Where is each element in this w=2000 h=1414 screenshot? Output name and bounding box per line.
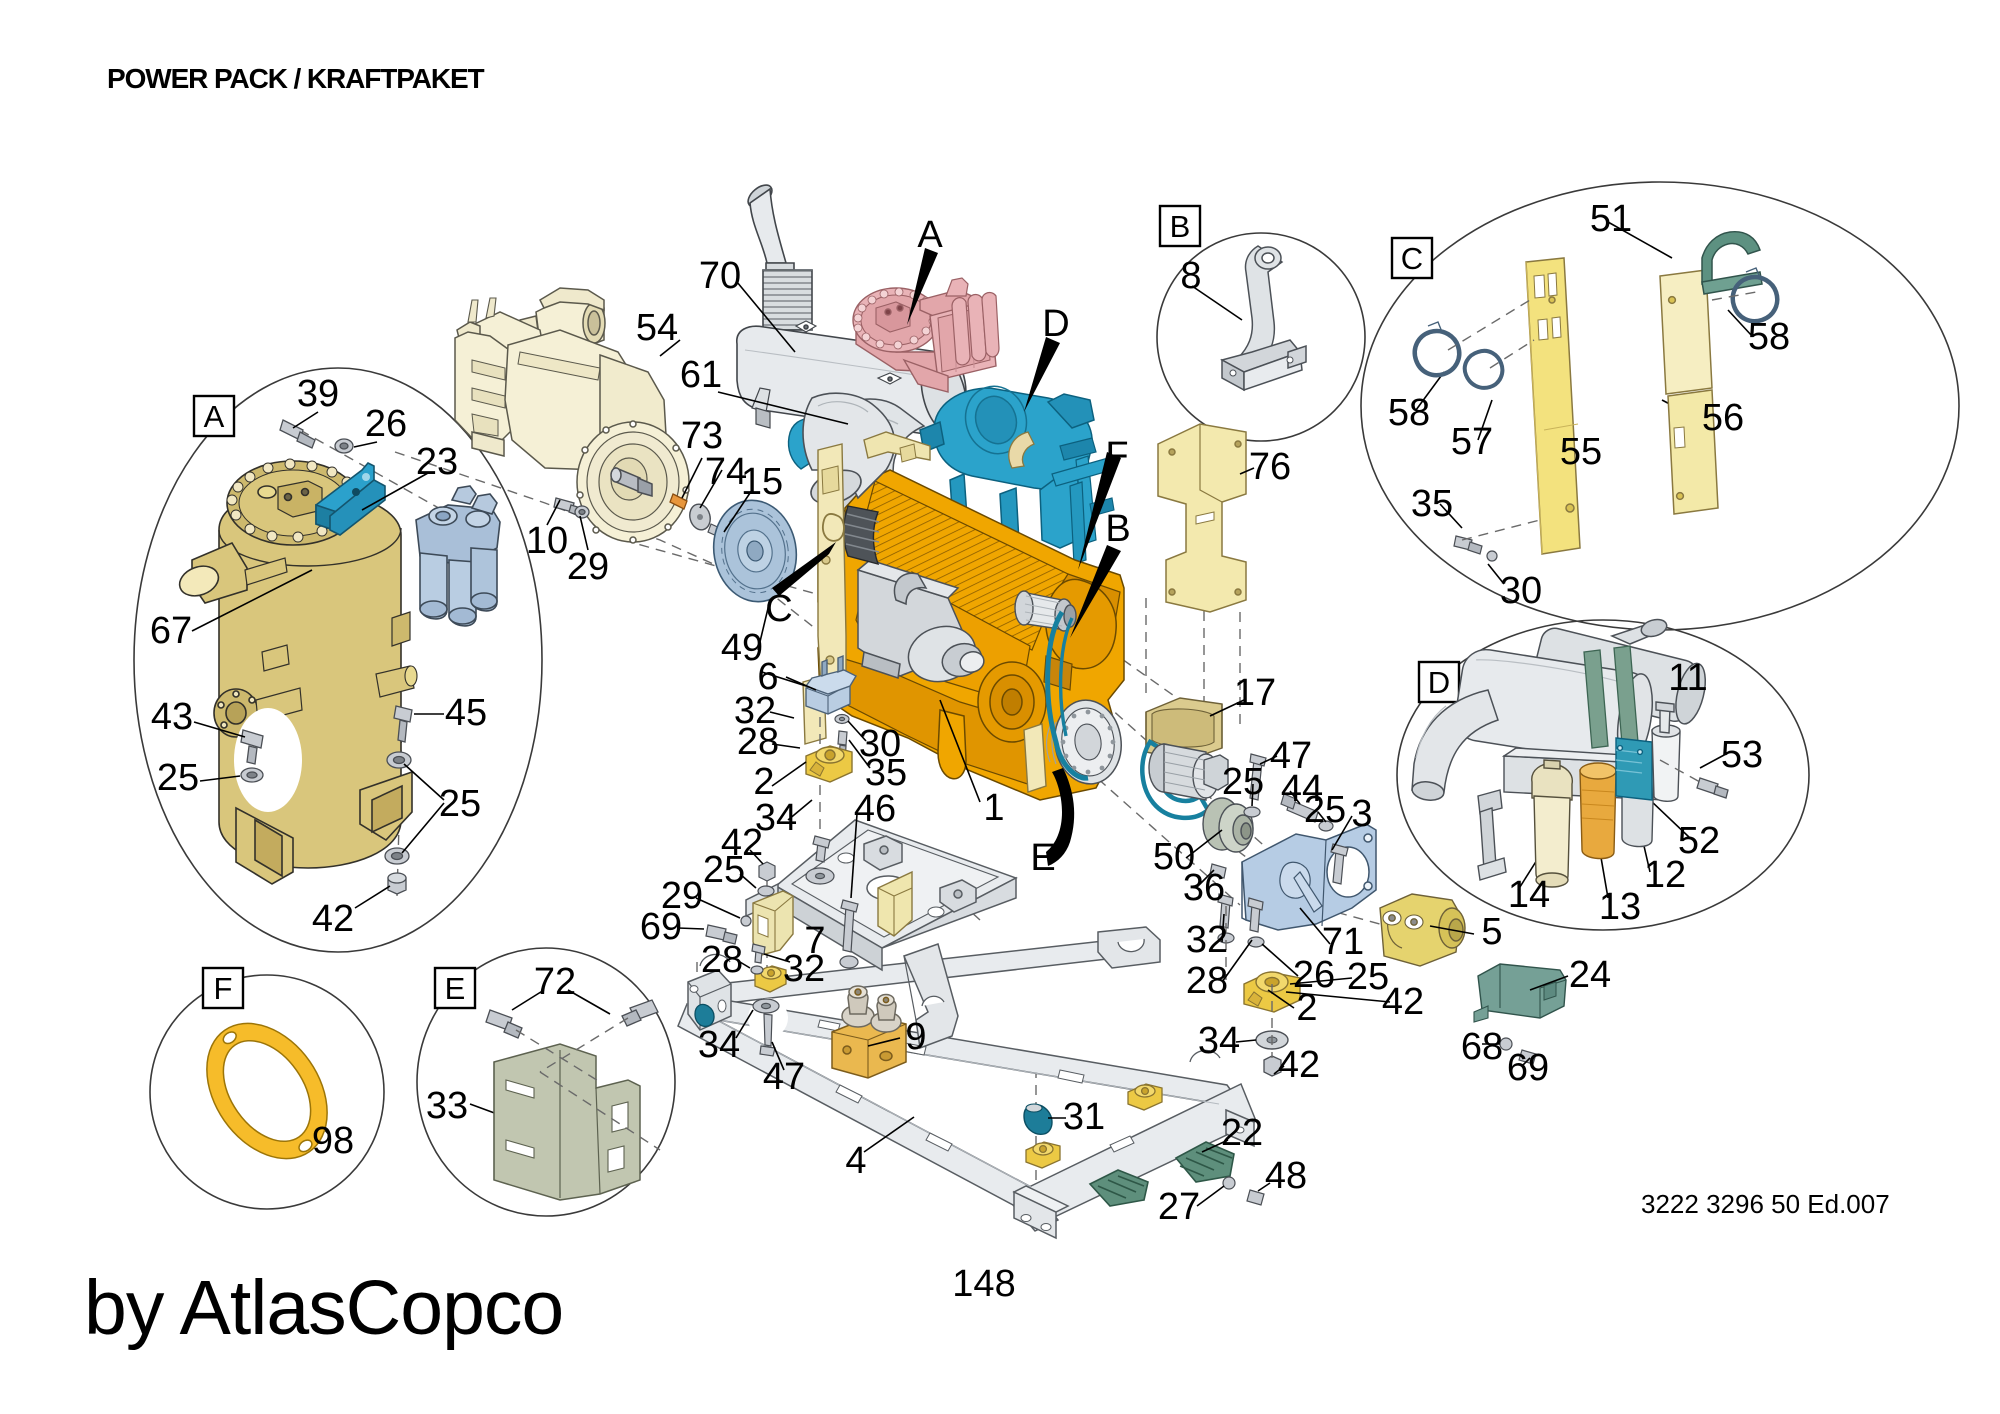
svg-text:1: 1 — [983, 787, 1004, 829]
svg-text:35: 35 — [1411, 483, 1453, 525]
svg-text:32: 32 — [783, 948, 825, 990]
svg-text:53: 53 — [1721, 734, 1763, 776]
svg-text:25: 25 — [439, 783, 481, 825]
svg-text:48: 48 — [1265, 1155, 1307, 1197]
svg-text:42: 42 — [1278, 1044, 1320, 1086]
svg-text:E: E — [445, 971, 466, 1006]
svg-text:56: 56 — [1702, 397, 1744, 439]
svg-text:25: 25 — [1222, 761, 1264, 803]
svg-text:34: 34 — [698, 1024, 740, 1066]
svg-text:25: 25 — [157, 757, 199, 799]
svg-text:70: 70 — [699, 255, 741, 297]
svg-text:F: F — [1105, 435, 1128, 477]
svg-text:27: 27 — [1158, 1186, 1200, 1228]
svg-text:42: 42 — [312, 898, 354, 940]
svg-text:61: 61 — [680, 354, 722, 396]
svg-text:4: 4 — [845, 1140, 866, 1182]
svg-text:34: 34 — [1198, 1020, 1240, 1062]
svg-text:68: 68 — [1461, 1026, 1503, 1068]
svg-text:E: E — [1030, 837, 1055, 879]
svg-text:8: 8 — [1180, 255, 1201, 297]
svg-text:22: 22 — [1221, 1112, 1263, 1154]
svg-text:25: 25 — [1304, 789, 1346, 831]
svg-text:33: 33 — [426, 1085, 468, 1127]
svg-text:17: 17 — [1234, 672, 1276, 714]
svg-text:24: 24 — [1569, 954, 1611, 996]
svg-text:47: 47 — [763, 1056, 805, 1098]
svg-text:11: 11 — [1668, 657, 1707, 699]
svg-text:12: 12 — [1644, 854, 1686, 896]
svg-text:31: 31 — [1063, 1096, 1105, 1138]
svg-text:B: B — [1105, 508, 1130, 550]
svg-text:28: 28 — [1186, 960, 1228, 1002]
svg-text:15: 15 — [741, 461, 783, 503]
svg-text:A: A — [917, 214, 943, 256]
svg-text:A: A — [204, 399, 225, 434]
svg-text:29: 29 — [567, 546, 609, 588]
svg-text:67: 67 — [150, 610, 192, 652]
svg-text:42: 42 — [1382, 981, 1424, 1023]
svg-text:by AtlasCopco: by AtlasCopco — [84, 1265, 563, 1351]
svg-text:10: 10 — [526, 520, 568, 562]
svg-text:72: 72 — [534, 961, 576, 1003]
svg-text:51: 51 — [1590, 198, 1632, 240]
svg-text:43: 43 — [151, 696, 193, 738]
svg-text:26: 26 — [365, 403, 407, 445]
svg-text:5: 5 — [1481, 911, 1502, 953]
svg-text:9: 9 — [905, 1016, 926, 1058]
svg-text:13: 13 — [1599, 886, 1641, 928]
svg-text:C: C — [1401, 241, 1423, 276]
svg-text:98: 98 — [312, 1120, 354, 1162]
svg-text:POWER PACK / KRAFTPAKET: POWER PACK / KRAFTPAKET — [107, 63, 485, 94]
svg-text:45: 45 — [445, 692, 487, 734]
svg-text:57: 57 — [1451, 421, 1493, 463]
svg-text:30: 30 — [1500, 570, 1542, 612]
svg-text:36: 36 — [1183, 867, 1225, 909]
svg-text:46: 46 — [854, 788, 896, 830]
svg-text:69: 69 — [1507, 1047, 1549, 1089]
svg-text:54: 54 — [636, 307, 678, 349]
svg-text:58: 58 — [1748, 316, 1790, 358]
svg-text:28: 28 — [701, 939, 743, 981]
svg-text:39: 39 — [297, 373, 339, 415]
svg-text:2: 2 — [1296, 987, 1317, 1029]
svg-text:F: F — [214, 971, 233, 1006]
svg-text:14: 14 — [1508, 874, 1550, 916]
svg-text:55: 55 — [1560, 431, 1602, 473]
svg-text:C: C — [765, 588, 792, 630]
svg-text:D: D — [1042, 303, 1069, 345]
svg-text:3222 3296 50 Ed.007: 3222 3296 50 Ed.007 — [1641, 1189, 1890, 1219]
svg-text:58: 58 — [1388, 392, 1430, 434]
svg-text:B: B — [1170, 209, 1191, 244]
svg-text:28: 28 — [737, 721, 779, 763]
svg-text:25: 25 — [703, 849, 745, 891]
svg-text:76: 76 — [1249, 446, 1291, 488]
svg-text:D: D — [1428, 665, 1450, 700]
svg-text:3: 3 — [1351, 793, 1372, 835]
svg-text:69: 69 — [640, 906, 682, 948]
svg-text:32: 32 — [1186, 919, 1228, 961]
svg-text:23: 23 — [416, 441, 458, 483]
svg-text:148: 148 — [952, 1263, 1015, 1305]
